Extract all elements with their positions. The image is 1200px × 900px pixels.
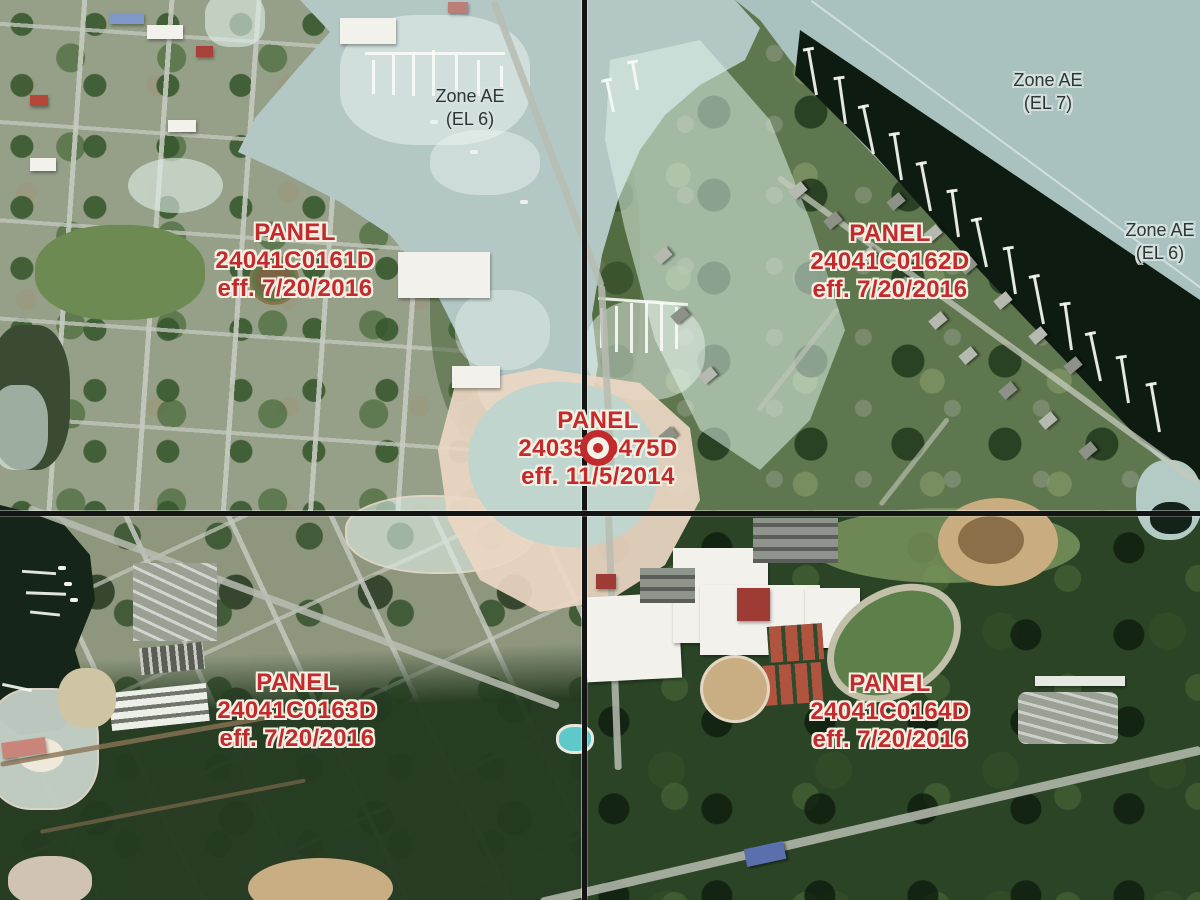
school-red-roof bbox=[737, 588, 770, 621]
parking-lot bbox=[753, 518, 838, 563]
dock bbox=[392, 55, 395, 95]
panel-gridline-horizontal bbox=[0, 511, 1200, 516]
location-marker-center-wrap bbox=[587, 437, 609, 459]
panel-label-0164: PANEL 24041C0164D eff. 7/20/2016 bbox=[810, 670, 969, 754]
map-canvas[interactable]: Zone AE (EL 6) Zone AE (EL 7) Zone AE (E… bbox=[0, 0, 1200, 900]
lagoon-dark-patch bbox=[1150, 502, 1192, 534]
building-red-roof bbox=[196, 46, 213, 57]
baseball-outfield bbox=[958, 516, 1024, 564]
storage-yard bbox=[1018, 692, 1118, 744]
panel-effective-date: eff. 7/20/2016 bbox=[810, 726, 969, 754]
boat bbox=[58, 566, 66, 570]
building-red-roof bbox=[30, 95, 48, 106]
panel-number: 24041C0162D bbox=[810, 248, 969, 276]
zone-label-line1: Zone AE bbox=[1013, 69, 1082, 92]
panel-label-0162: PANEL 24041C0162D eff. 7/20/2016 bbox=[810, 220, 969, 304]
harbor-wash-2 bbox=[430, 130, 540, 195]
building bbox=[340, 18, 396, 44]
flood-overlay-corner bbox=[205, 0, 265, 47]
location-marker-dot bbox=[593, 443, 603, 453]
park-green bbox=[35, 225, 205, 320]
zone-label-bay: Zone AE (EL 7) bbox=[1013, 69, 1082, 115]
panel-heading: PANEL bbox=[215, 219, 374, 247]
zone-label-harbor: Zone AE (EL 6) bbox=[435, 85, 504, 131]
dock bbox=[412, 52, 415, 96]
panel-effective-date: eff. 7/20/2016 bbox=[217, 725, 376, 753]
panel-label-0163: PANEL 24041C0163D eff. 7/20/2016 bbox=[217, 669, 376, 753]
dock bbox=[365, 52, 505, 55]
baseball-field-small bbox=[700, 655, 770, 723]
panel-effective-date: eff. 11/5/2014 bbox=[518, 463, 677, 491]
building bbox=[168, 120, 196, 132]
zone-label-line2: (EL 6) bbox=[435, 108, 504, 131]
dock bbox=[645, 301, 648, 353]
panel-number: 24041C0164D bbox=[810, 698, 969, 726]
location-marker-icon[interactable] bbox=[580, 430, 616, 466]
building bbox=[30, 158, 56, 171]
building-large-white bbox=[398, 252, 490, 298]
pink-blob-bottom bbox=[8, 856, 92, 900]
boat bbox=[470, 150, 478, 154]
zone-label-shore: Zone AE (EL 6) bbox=[1125, 219, 1194, 265]
dock bbox=[630, 303, 633, 353]
boat bbox=[70, 598, 78, 602]
panel-effective-date: eff. 7/20/2016 bbox=[810, 276, 969, 304]
building-red-roof bbox=[448, 2, 468, 13]
parking-lot bbox=[640, 568, 695, 603]
tennis-courts bbox=[767, 623, 824, 663]
school-building bbox=[583, 593, 682, 683]
panel-number: 24041C0161D bbox=[215, 247, 374, 275]
dock bbox=[660, 303, 663, 351]
sheds-row bbox=[1035, 676, 1125, 686]
boat bbox=[64, 582, 72, 586]
boatyard-parking bbox=[133, 563, 217, 641]
panel-label-0161: PANEL 24041C0161D eff. 7/20/2016 bbox=[215, 219, 374, 303]
building-blue-roof bbox=[110, 13, 144, 24]
dock bbox=[372, 60, 375, 94]
building-red-roof bbox=[596, 574, 616, 589]
zone-label-line2: (EL 7) bbox=[1013, 92, 1082, 115]
flood-overlay-town bbox=[128, 158, 223, 213]
panel-heading: PANEL bbox=[810, 220, 969, 248]
harbor-wash-3 bbox=[455, 290, 550, 370]
sand-lot bbox=[58, 668, 116, 728]
panel-heading: PANEL bbox=[810, 670, 969, 698]
boat bbox=[520, 200, 528, 204]
zone-label-line1: Zone AE bbox=[435, 85, 504, 108]
dock bbox=[615, 306, 618, 352]
flood-overlay-left-edge bbox=[0, 385, 48, 470]
zone-label-line1: Zone AE bbox=[1125, 219, 1194, 242]
building bbox=[452, 366, 500, 388]
panel-effective-date: eff. 7/20/2016 bbox=[215, 275, 374, 303]
building bbox=[147, 25, 183, 39]
panel-heading: PANEL bbox=[217, 669, 376, 697]
zone-label-line2: (EL 6) bbox=[1125, 242, 1194, 265]
pool bbox=[556, 724, 594, 754]
panel-number: 24041C0163D bbox=[217, 697, 376, 725]
